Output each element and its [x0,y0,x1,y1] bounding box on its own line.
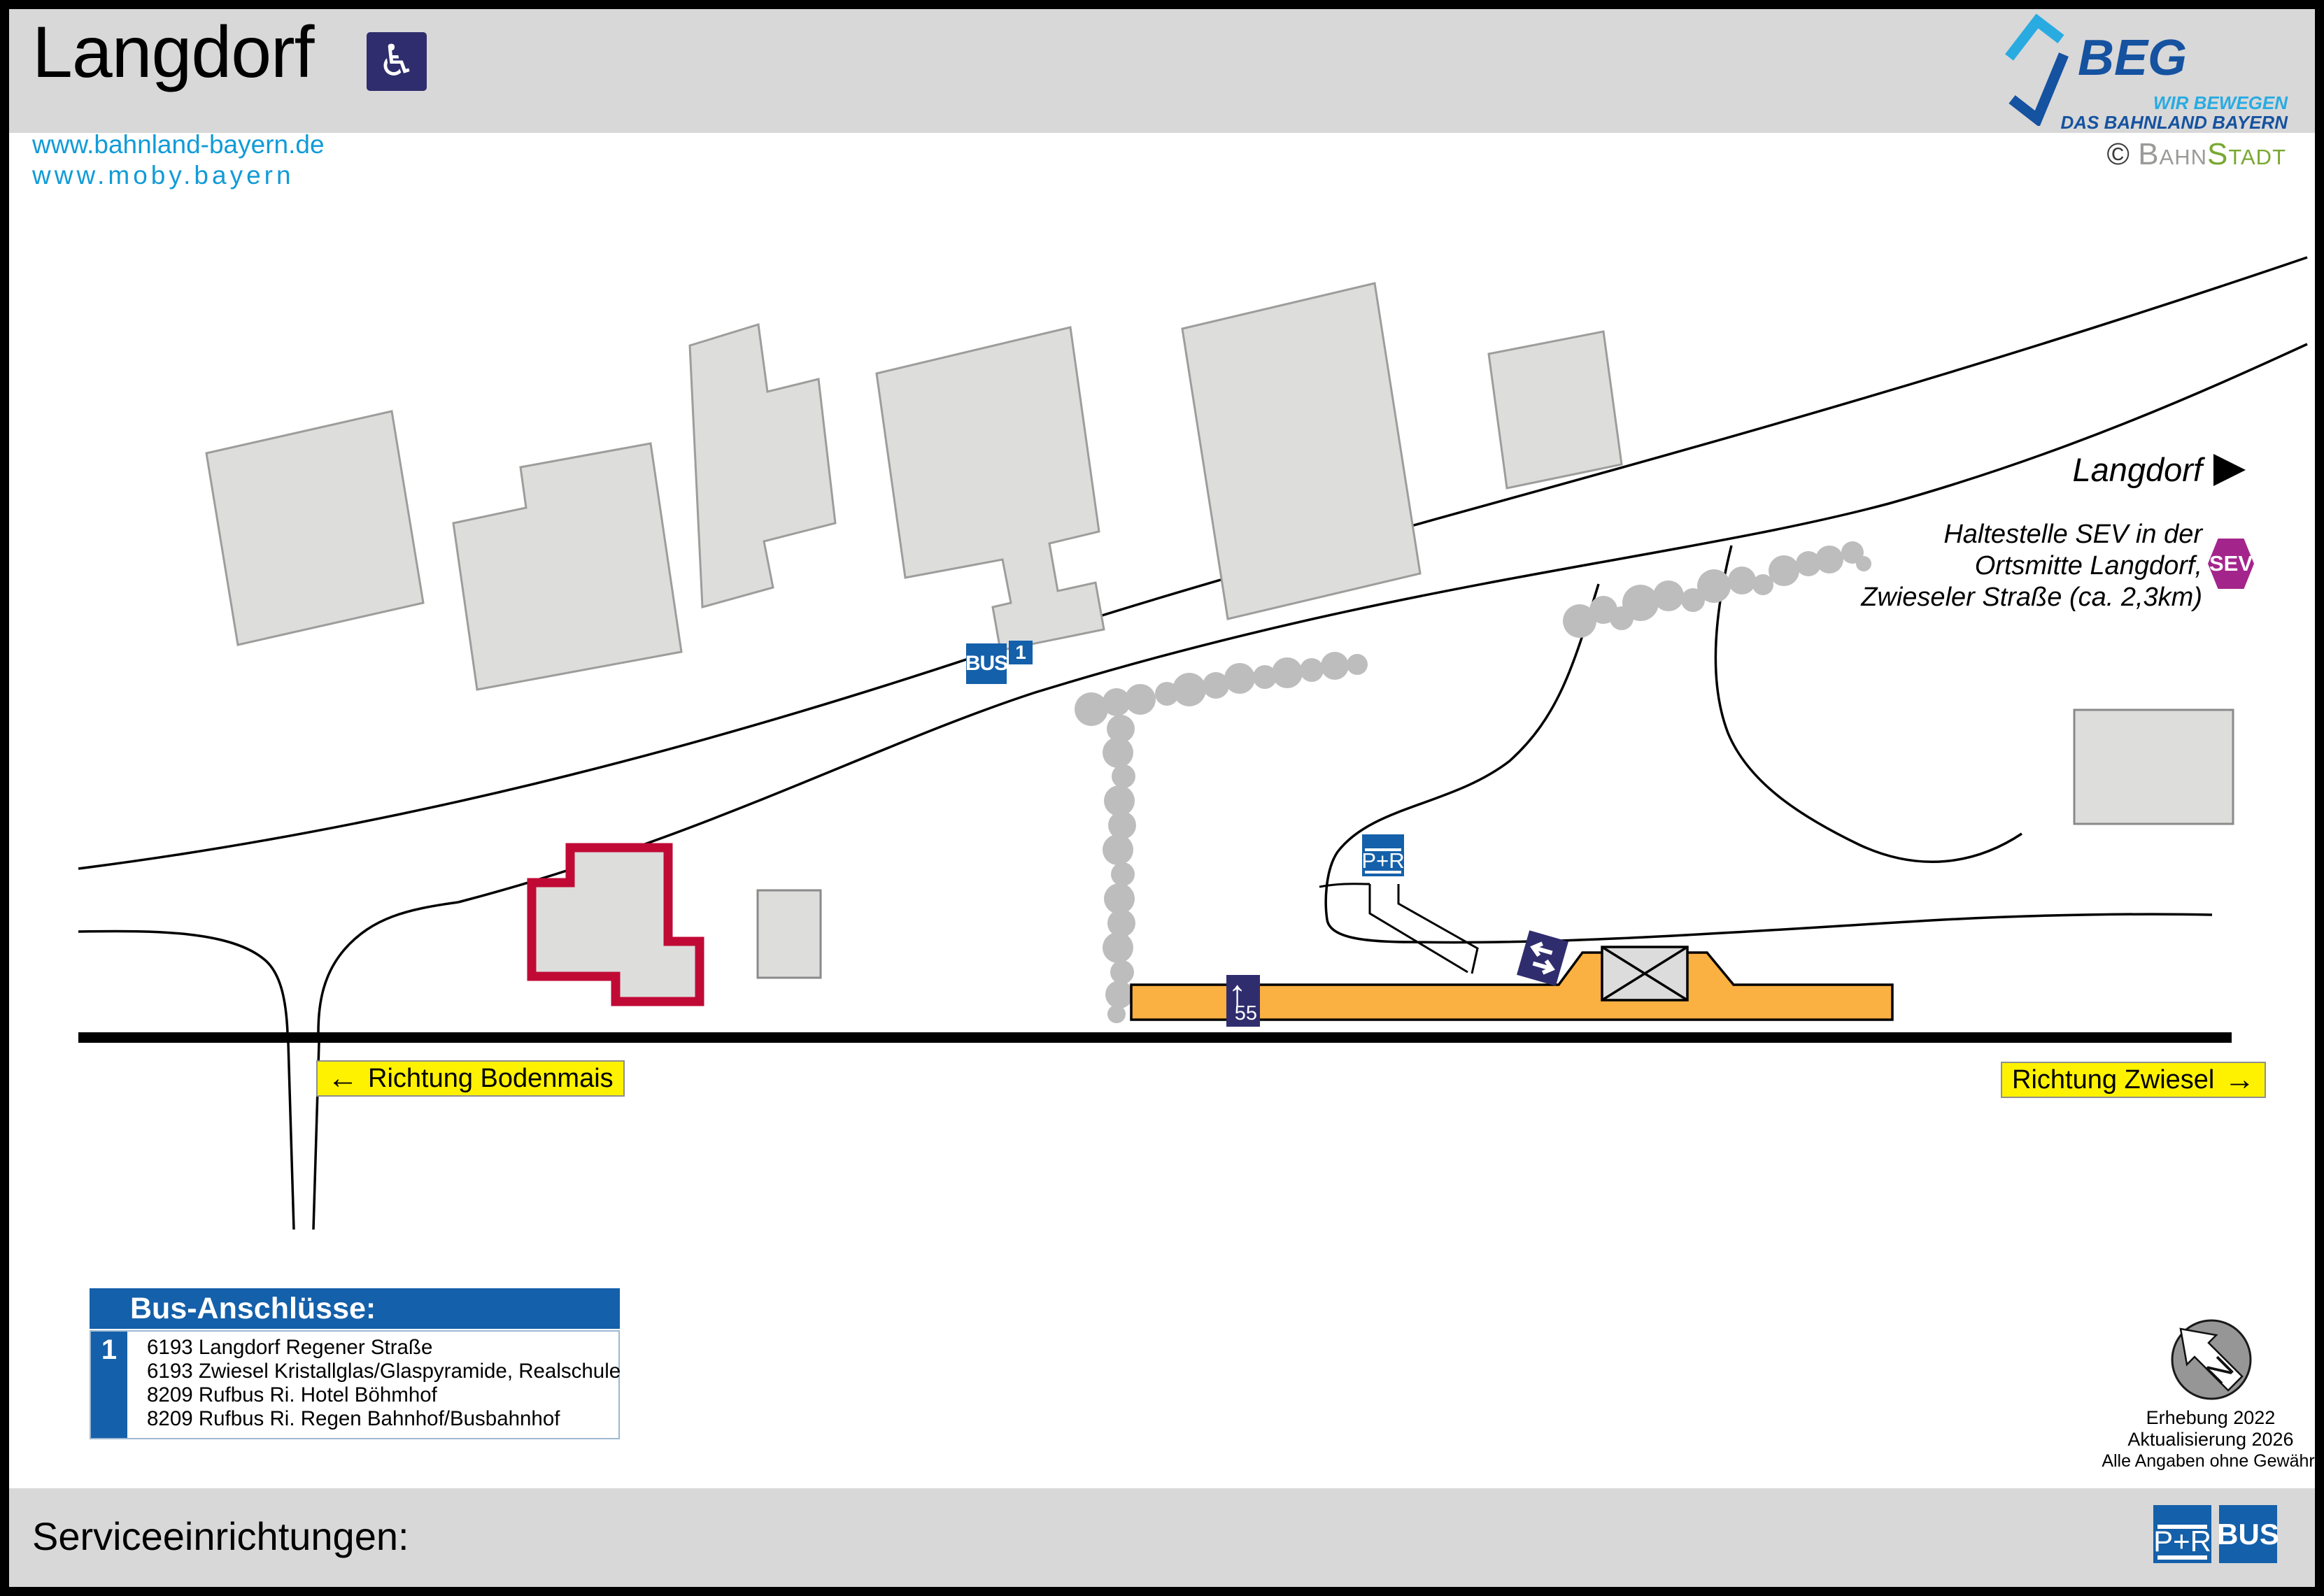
legend-stop-number: 1 [91,1332,127,1438]
moby-bayern-link[interactable]: www.moby.bayern [32,161,295,190]
beg-tagline-2: DAS BAHNLAND BAYERN [2060,112,2288,134]
survey-notes: Erhebung 2022 Aktualisierung 2026 Alle A… [2071,1407,2324,1472]
buildings [206,283,2233,978]
bus-icon: BUS [966,643,1007,684]
beg-wordmark: BEG [2078,29,2187,87]
bus-stop-1-badge: BUS 1 [966,643,1033,684]
direction-zwiesel-sign: Richtung Zwiesel → [2001,1062,2266,1098]
legend-title: Bus-Anschlüsse: [90,1288,620,1329]
direction-bodenmais-sign: ← Richtung Bodenmais [316,1060,625,1097]
direction-langdorf-label: Langdorf [2072,450,2246,489]
station-map-page: N Langdorf ♿ BEG WIR BEWEGEN DAS BAHNLAN… [0,0,2324,1596]
double-arrow-icon [1523,938,1562,978]
building [690,325,835,607]
bus-connections-legend: Bus-Anschlüsse: 1 6193 Langdorf Regener … [90,1288,620,1439]
page-title: Langdorf [32,11,314,94]
side-road-below-rail-left [288,1043,294,1230]
junction-east-edge [318,902,458,1032]
shelter-crossed-box [1602,947,1687,1000]
forecourt-path-lines [1319,884,1478,974]
left-arrow-icon: ← [327,1061,358,1096]
copyright-icon: © [2107,137,2130,171]
park-and-ride-icon: P+R [2153,1505,2211,1563]
legend-line: 6193 Langdorf Regener Straße [147,1336,621,1360]
station-building [532,848,700,1002]
service-facilities-label: Serviceeinrichtungen: [32,1513,409,1559]
building [2074,710,2233,824]
beg-logo: BEG WIR BEWEGEN DAS BAHNLAND BAYERN [2002,10,2303,129]
railway-line [78,1032,2232,1043]
building [1182,283,1420,619]
right-arrow-icon: → [2224,1062,2255,1097]
sev-replacement-note: Haltestelle SEV in der Ortsmitte Langdor… [1861,519,2202,613]
legend-line: 8209 Rufbus Ri. Regen Bahnhof/Busbahnhof [147,1407,621,1431]
building [877,327,1104,650]
beg-diamond-icon [2002,14,2072,126]
park-and-ride-icon: P+R [1362,834,1404,876]
platform-55-sign: ↑ 55 [1226,975,1260,1027]
bahnland-bayern-link[interactable]: www.bahnland-bayern.de [32,130,325,159]
bahnstadt-credit: © BahnStadt [2107,137,2286,172]
compass-north-icon: N [2172,1320,2251,1399]
beg-tagline-1: WIR BEWEGEN [2153,92,2288,114]
service-facilities-bar: Serviceeinrichtungen: P+R BUS [0,1488,2324,1596]
building [453,443,681,690]
header-bar: Langdorf ♿ BEG WIR BEWEGEN DAS BAHNLAND … [0,0,2324,133]
building [758,890,821,978]
bus-icon: BUS [2219,1505,2277,1563]
legend-line: 6193 Zwiesel Kristallglas/Glaspyramide, … [147,1360,621,1383]
junction-west-edge [78,931,288,1032]
legend-line: 8209 Rufbus Ri. Hotel Böhmhof [147,1383,621,1407]
wheelchair-accessible-icon: ♿ [367,32,427,91]
right-triangle-icon [2213,454,2246,486]
building [1489,332,1622,488]
legend-body: 1 6193 Langdorf Regener Straße 6193 Zwie… [90,1330,620,1439]
bus-stop-number: 1 [1009,641,1033,664]
building [206,411,423,645]
